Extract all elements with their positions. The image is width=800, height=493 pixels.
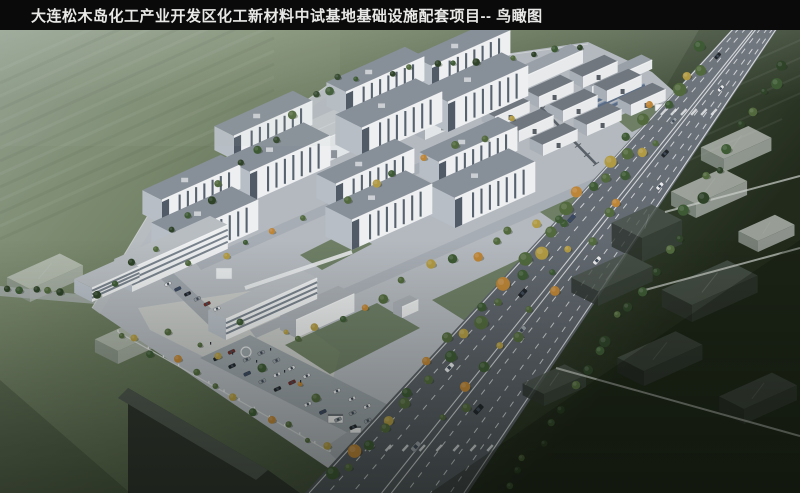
rendering-canvas: 大连松木岛化工产业开发区化工新材料中试基地基础设施配套项目-- 鸟瞰图 — [0, 0, 800, 493]
project-title: 大连松木岛化工产业开发区化工新材料中试基地基础设施配套项目-- 鸟瞰图 — [0, 5, 543, 26]
title-bar: 大连松木岛化工产业开发区化工新材料中试基地基础设施配套项目-- 鸟瞰图 — [0, 0, 800, 30]
aerial-rendering — [0, 0, 800, 493]
